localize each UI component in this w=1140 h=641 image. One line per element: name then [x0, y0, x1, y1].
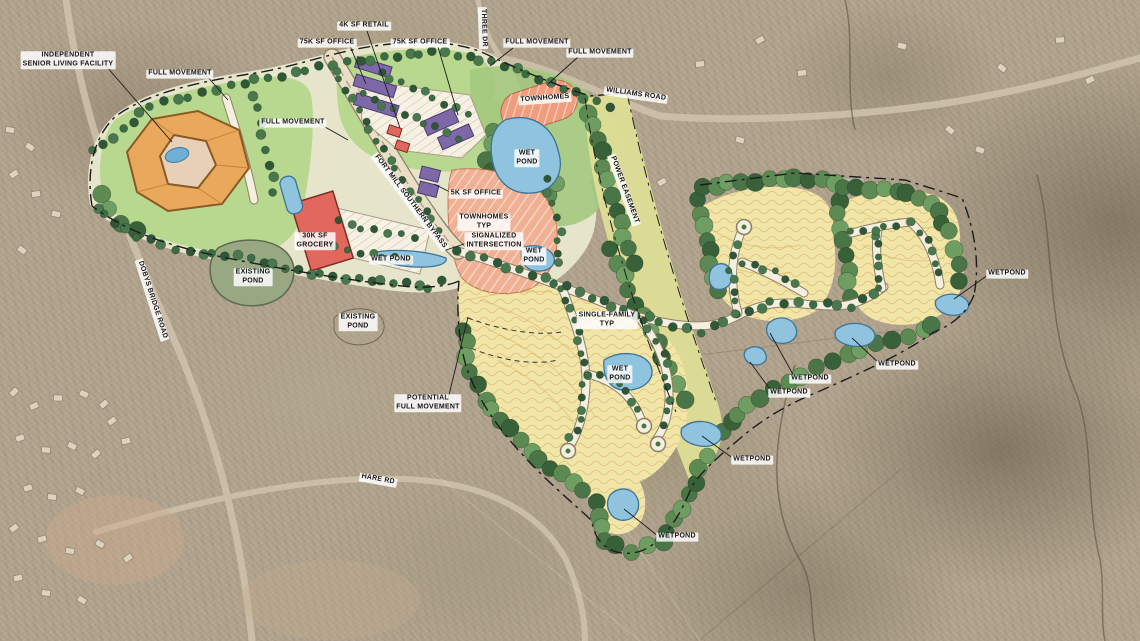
existing-pond-west-shape [210, 240, 294, 306]
site-plan-map: INDEPENDENT SENIOR LIVING FACILITYFULL M… [0, 0, 1140, 641]
site-plan-graphics [0, 0, 1140, 641]
existing-pond-south-shape [334, 309, 384, 345]
